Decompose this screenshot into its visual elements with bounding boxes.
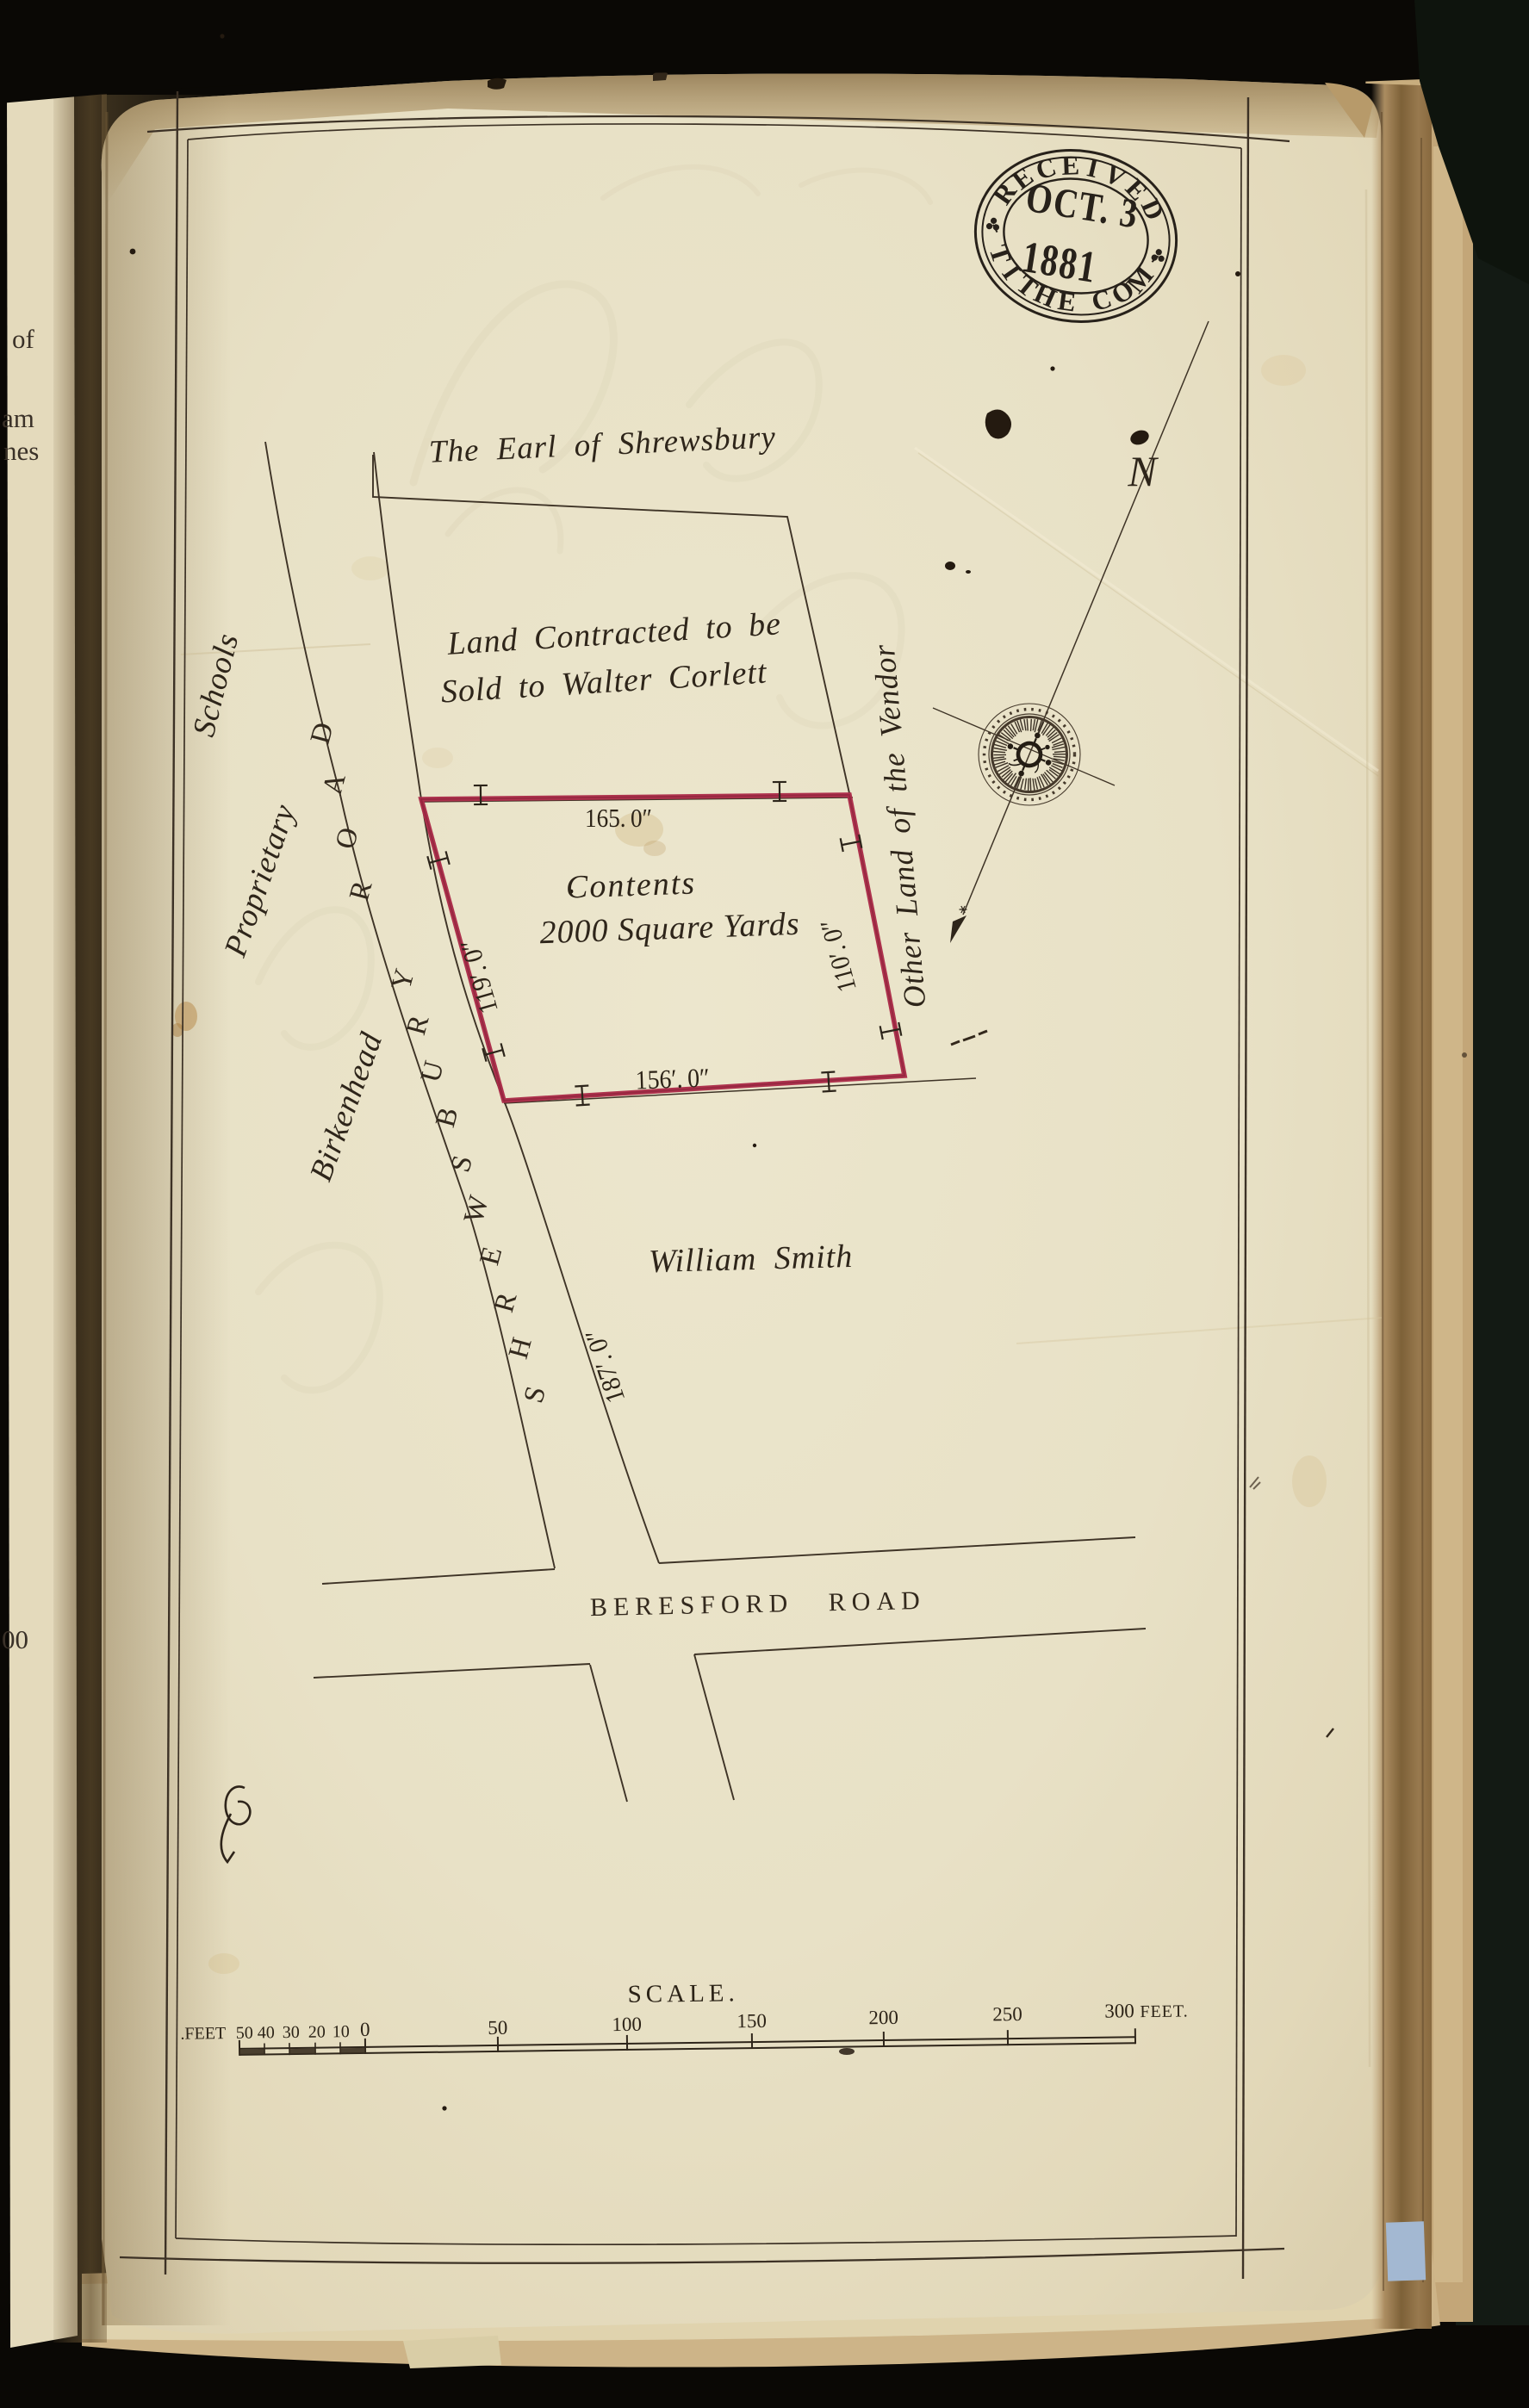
- svg-text:W: W: [458, 1192, 495, 1226]
- svg-text:30: 30: [283, 2023, 300, 2042]
- svg-text:T: T: [983, 241, 1017, 268]
- svg-text:William Smith: William Smith: [648, 1238, 853, 1280]
- svg-text:N: N: [1127, 447, 1159, 495]
- svg-text:50: 50: [236, 2024, 253, 2043]
- svg-text:I: I: [1085, 152, 1102, 183]
- svg-text:40: 40: [258, 2023, 275, 2042]
- svg-text:.FEET: .FEET: [180, 2024, 226, 2044]
- svg-text:2000 Square Yards: 2000 Square Yards: [539, 906, 800, 952]
- svg-text:Other Land of the Vendor: Other Land of the Vendor: [867, 642, 933, 1009]
- svg-text:Y: Y: [386, 965, 421, 993]
- svg-text:Schools: Schools: [186, 630, 246, 740]
- svg-text:150: 150: [737, 2010, 767, 2032]
- svg-text:100: 100: [612, 2014, 642, 2035]
- svg-text:187′. 0″: 187′. 0″: [579, 1325, 631, 1407]
- svg-text:R: R: [401, 1012, 435, 1039]
- svg-text:110′. 0″: 110′. 0″: [814, 916, 862, 996]
- svg-text:The Earl of Shrewsbury: The Earl of Shrewsbury: [428, 419, 777, 470]
- svg-text:U: U: [415, 1058, 451, 1085]
- svg-text:Contents: Contents: [565, 865, 696, 905]
- svg-text:165. 0″: 165. 0″: [585, 803, 652, 833]
- svg-text:Sold to Walter Corlett: Sold to Walter Corlett: [440, 654, 769, 710]
- svg-text:156′. 0″: 156′. 0″: [635, 1063, 710, 1095]
- svg-text:50: 50: [488, 2017, 507, 2039]
- svg-text:250: 250: [992, 2003, 1022, 2025]
- svg-text:Birkenhead: Birkenhead: [303, 1027, 389, 1186]
- svg-text:Land Contracted to be: Land Contracted to be: [445, 605, 782, 662]
- svg-text:D: D: [305, 719, 340, 747]
- svg-text:SCALE.: SCALE.: [627, 1979, 739, 2008]
- svg-text:R: R: [344, 878, 378, 904]
- svg-text:S: S: [519, 1383, 553, 1406]
- svg-text:10: 10: [333, 2022, 350, 2041]
- svg-text:300: 300: [1104, 2000, 1134, 2021]
- svg-text:20: 20: [308, 2023, 326, 2042]
- svg-text:R: R: [488, 1289, 523, 1316]
- svg-text:FEET.: FEET.: [1140, 2001, 1189, 2021]
- svg-text:E: E: [474, 1244, 508, 1269]
- svg-text:0: 0: [360, 2019, 370, 2040]
- svg-text:OCT. 3: OCT. 3: [1022, 175, 1141, 237]
- svg-text:BERESFORD ROAD: BERESFORD ROAD: [590, 1586, 926, 1622]
- svg-text:O: O: [330, 824, 365, 852]
- svg-text:A: A: [317, 770, 352, 797]
- svg-text:200: 200: [868, 2007, 898, 2028]
- svg-text:H: H: [503, 1334, 538, 1362]
- svg-text:E: E: [1061, 150, 1080, 181]
- svg-text:B: B: [430, 1104, 464, 1131]
- svg-text:S: S: [445, 1152, 480, 1176]
